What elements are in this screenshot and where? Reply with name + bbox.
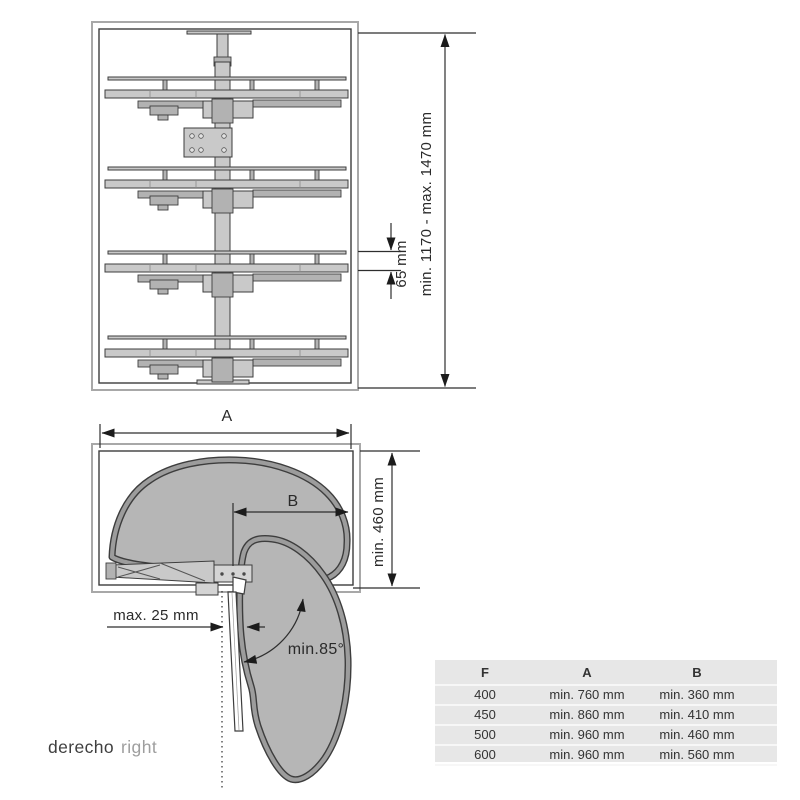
table-header-cell: A (535, 660, 639, 685)
table-cell: 400 (435, 686, 535, 704)
caption-secondary: right (121, 737, 157, 757)
caption-primary: derecho (48, 737, 114, 757)
table-row: 450 min. 860 mm min. 410 mm (435, 706, 777, 726)
table-row: 600 min. 960 mm min. 560 mm (435, 746, 777, 766)
width-dimension (100, 424, 351, 449)
table-header-cell: B (639, 660, 755, 685)
table-cell: min. 860 mm (535, 706, 639, 724)
table-cell: min. 560 mm (639, 746, 755, 764)
table-cell: 600 (435, 746, 535, 764)
height-dimension (358, 33, 476, 388)
opening-angle-label: min.85° (261, 641, 371, 659)
table-cell: 450 (435, 706, 535, 724)
table-cell: min. 360 mm (639, 686, 755, 704)
table-cell: min. 410 mm (639, 706, 755, 724)
table-cell: min. 760 mm (535, 686, 639, 704)
height-dimension-label: min. 1170 - max. 1470 mm (418, 74, 436, 334)
table-cell: 500 (435, 726, 535, 744)
table-row: 400 min. 760 mm min. 360 mm (435, 686, 777, 706)
technical-drawing-page: min. 1170 - max. 1470 mm 65 mm A B min. … (0, 0, 800, 800)
shelf-edge-dimension-label: 65 mm (393, 229, 411, 299)
width-dimension-label: A (212, 408, 242, 426)
table-header-row: F A B (435, 660, 777, 686)
wall-bracket (184, 128, 232, 157)
door-gap-dimension-label: max. 25 mm (91, 607, 221, 625)
table-header-cell: F (435, 660, 535, 685)
arm-dimension-label: B (278, 493, 308, 511)
dimensions-table: F A B 400 min. 760 mm min. 360 mm 450 mi… (435, 660, 777, 762)
table-row: 500 min. 960 mm min. 460 mm (435, 726, 777, 746)
pivot-mechanism (106, 561, 252, 595)
depth-dimension-label: min. 460 mm (370, 462, 388, 582)
table-cell: min. 460 mm (639, 726, 755, 744)
table-cell: min. 960 mm (535, 726, 639, 744)
orientation-caption: derechoright (48, 737, 157, 758)
table-cell: min. 960 mm (535, 746, 639, 764)
